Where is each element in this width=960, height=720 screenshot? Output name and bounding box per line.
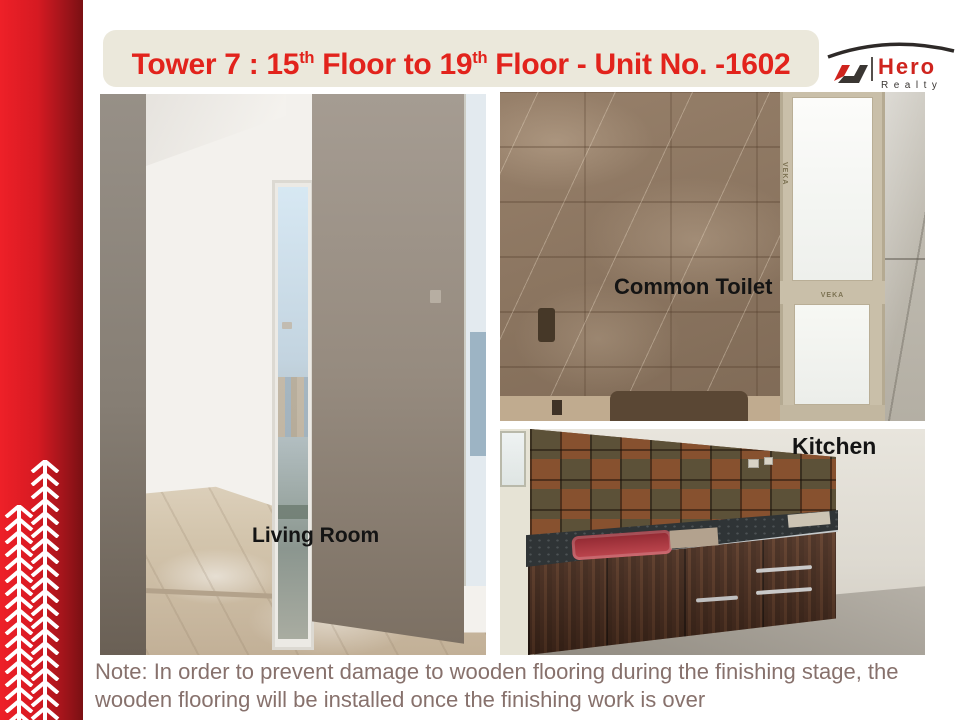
window-brand-tape: VEKA bbox=[821, 292, 844, 299]
logo-brand-text: Hero bbox=[878, 54, 936, 80]
toilet-window-mullion: VEKA bbox=[780, 281, 885, 304]
common-toilet-photo: VEKA VEKA Common Toilet bbox=[500, 92, 925, 421]
window-brand-tape: VEKA bbox=[781, 162, 788, 185]
kitchen-drainboard bbox=[669, 527, 718, 548]
kitchen-photo: Kitchen bbox=[500, 429, 925, 655]
slide-title: Tower 7 : 15th Floor to 19th Floor - Uni… bbox=[132, 48, 791, 81]
slide: Tower 7 : 15th Floor to 19th Floor - Uni… bbox=[0, 0, 960, 720]
toilet-marble-wall bbox=[500, 92, 780, 421]
logo-tagline-text: Realty bbox=[881, 80, 942, 91]
living-room-left-wall bbox=[100, 94, 146, 655]
toilet-side-tiles bbox=[885, 92, 925, 421]
common-toilet-label: Common Toilet bbox=[614, 274, 772, 300]
side-window-glass bbox=[470, 332, 486, 456]
living-room-balcony-door bbox=[272, 180, 314, 650]
title-banner: Tower 7 : 15th Floor to 19th Floor - Uni… bbox=[103, 30, 819, 87]
balcony-door-glass bbox=[278, 187, 308, 639]
living-room-label: Living Room bbox=[252, 524, 379, 548]
logo-mark-icon bbox=[830, 57, 870, 83]
kitchen-switch-plate bbox=[764, 457, 773, 465]
wheat-stalk-decoration-icon bbox=[2, 460, 66, 720]
logo-divider bbox=[871, 57, 873, 81]
hero-realty-logo: Hero Realty bbox=[824, 33, 958, 95]
toilet-window-frame: VEKA VEKA bbox=[780, 92, 885, 421]
kitchen-label: Kitchen bbox=[792, 433, 876, 460]
toilet-switch-plate bbox=[538, 308, 555, 342]
left-accent-bar bbox=[0, 0, 83, 720]
living-room-side-window bbox=[464, 94, 486, 586]
toilet-window-sill bbox=[780, 405, 885, 421]
living-room-ceiling bbox=[146, 94, 286, 166]
toilet-basin-counter bbox=[610, 391, 748, 421]
toilet-window-top-glass bbox=[792, 97, 873, 281]
wall-outlet bbox=[282, 322, 292, 329]
note-text: Note: In order to prevent damage to wood… bbox=[95, 658, 903, 713]
city-view bbox=[278, 377, 308, 437]
kitchen-switch-plate bbox=[748, 459, 759, 468]
kitchen-window bbox=[500, 431, 526, 487]
toilet-fixture bbox=[552, 400, 562, 415]
balcony-rail bbox=[278, 505, 308, 519]
wall-outlet bbox=[430, 290, 441, 303]
living-room-photo: Living Room bbox=[100, 94, 486, 655]
toilet-window-bottom-glass bbox=[794, 304, 870, 405]
living-room-right-wall bbox=[312, 94, 464, 655]
